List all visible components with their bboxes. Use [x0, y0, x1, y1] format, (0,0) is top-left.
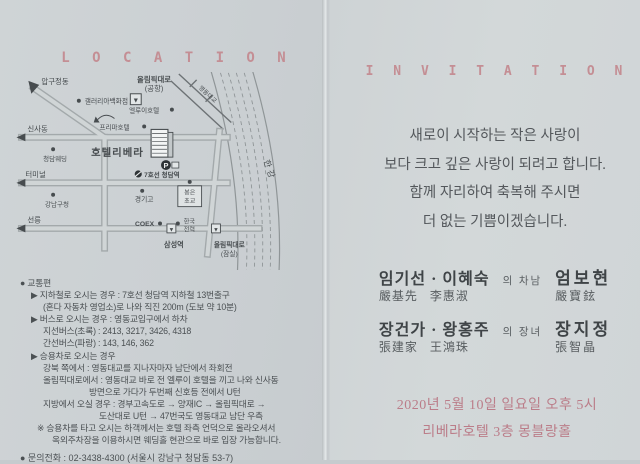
invitation-title: I N V I T A T I O N: [342, 64, 640, 79]
map-label-olympic-jamsil: 올림픽대로: [214, 240, 245, 249]
groom-relation-label: 의 차남: [503, 273, 543, 288]
map-label-apgujeong: 압구정동: [41, 76, 68, 86]
galleria-dot: [77, 99, 81, 103]
prima-dot: [142, 124, 146, 128]
map-label-kepco-1: 한국: [184, 218, 196, 225]
bride-parents-names: 장건가 · 왕홍주: [379, 316, 490, 340]
cheongdam-wedding-dot: [51, 147, 55, 151]
groom-name: 엄보현: [555, 264, 611, 289]
map-label-ellui: 엘루이호텔: [129, 106, 159, 115]
transport-line-subway: ▶ 지하철로 오시는 경우 : 7호선 청담역 지하철 13번출구: [31, 289, 322, 301]
map-label-terminal: 터미널: [25, 170, 46, 179]
map-label-cheongdam-wedding: 청담웨딩: [43, 154, 67, 163]
kepco-dot: [176, 221, 180, 225]
card-fold: [322, 0, 330, 460]
groom-name-hanja: 嚴寶鉉: [555, 289, 611, 303]
uturn-arrow: [98, 115, 115, 119]
hotel-building-icon: [151, 129, 173, 157]
map-label-coex: COEX: [135, 221, 155, 228]
message-line-4: 더 없는 기쁨이겠습니다.: [340, 208, 640, 237]
transport-line-car-5: 지방에서 오실 경우 : 경부고속도로 → 양재IC → 올림픽대로 →: [43, 398, 322, 410]
transport-section: ● 교통편 ▶ 지하철로 오시는 경우 : 7호선 청담역 지하철 13번출구 …: [0, 277, 322, 446]
subway-icon: [135, 170, 142, 177]
left-page: L O C A T I O N 한강: [0, 0, 322, 460]
map-label-kyunggi-high: 경기고: [135, 195, 154, 204]
coex-dot: [158, 221, 162, 225]
kyunggi-dot: [140, 189, 144, 193]
map-label-olympic-airport-2: (공항): [145, 84, 164, 93]
transport-line-car: ▶ 승용차로 오시는 경우: [31, 350, 322, 362]
transport-note: ※ 승용차를 타고 오시는 하객께서는 호텔 좌측 언덕으로 올라오셔서: [37, 422, 322, 434]
map-label-seolleung: 선릉: [27, 215, 41, 224]
bongeun-school-box: 봉은 초교: [178, 186, 202, 207]
message-line-2: 보다 크고 깊은 사랑이 되려고 합니다.: [340, 151, 640, 180]
svg-text:▼: ▼: [213, 227, 219, 233]
bride-parents-hanja: 張建家 王鴻珠: [379, 340, 490, 354]
uturn-arrowhead: [94, 117, 100, 123]
map-label-samseong: 삼성역: [164, 240, 184, 249]
location-title: L O C A T I O N: [16, 50, 338, 66]
map-svg: 한강 영동대교: [14, 72, 310, 270]
svg-text:▼: ▼: [168, 227, 174, 233]
bride-family-row: 장건가 · 왕홍주 의 장녀 장지정 張建家 王鴻珠 張智晶: [379, 315, 611, 354]
transport-line-bus: ▶ 버스로 오시는 경우 : 영동교입구에서 하차: [31, 313, 322, 325]
event-datetime: 2020년 5월 10일 일요일 오후 5시: [342, 392, 640, 419]
transport-line-bus-3: 간선버스(파랑) : 143, 146, 362: [43, 337, 322, 349]
message-line-1: 새로이 시작하는 작은 사랑이: [340, 122, 640, 151]
svg-text:초교: 초교: [184, 198, 196, 205]
transport-heading: ● 교통편: [20, 277, 322, 289]
parking-icon: P: [161, 160, 179, 170]
map: 한강 영동대교: [14, 72, 322, 275]
invitation-message: 새로이 시작하는 작은 사랑이 보다 크고 깊은 사랑이 되려고 합니다. 함께…: [340, 122, 640, 236]
transport-line-bus-2: 지선버스(초록) : 2413, 3217, 3426, 4318: [43, 325, 322, 337]
groom-family-row: 임기선 · 이혜숙 의 차남 엄보현 嚴基先 李惠淑 嚴寶鉉: [379, 264, 611, 303]
han-river: 한강: [210, 72, 280, 270]
svg-text:봉은: 봉은: [184, 189, 196, 197]
map-label-gangnam-office: 강남구청: [45, 200, 69, 209]
map-label-olympic-airport: 올림픽대로: [137, 74, 171, 84]
map-label-galleria: 갤러리아백화점: [85, 97, 128, 106]
transport-note-2: 옥외주차장을 이용하시면 웨딩홀 현관으로 바로 입장 가능합니다.: [52, 434, 322, 446]
families-section: 임기선 · 이혜숙 의 차남 엄보현 嚴基先 李惠淑 嚴寶鉉 장건가 · 왕홍주…: [340, 252, 640, 354]
map-label-hotel-riviera: 호텔리베라: [91, 146, 144, 159]
down-arrow-icon: ▼: [132, 98, 139, 105]
groom-parents-names: 임기선 · 이혜숙: [379, 265, 490, 289]
invitation-card: L O C A T I O N 한강: [0, 0, 640, 460]
right-page: I N V I T A T I O N 새로이 시작하는 작은 사랑이 보다 크…: [330, 0, 640, 460]
event-details: 2020년 5월 10일 일요일 오후 5시 리베라호텔 3층 몽블랑홀: [342, 392, 640, 446]
map-label-sinsadong: 신사동: [27, 124, 48, 133]
transport-line-subway-2: (혼다 자동차 영업소)로 나와 직진 200m (도보 약 10분): [43, 301, 322, 313]
map-label-prima: 프리마호텔: [99, 122, 129, 131]
groom-parents-hanja: 嚴基先 李惠淑: [379, 289, 490, 303]
transport-line-car-6: 도산대로 U턴 → 47번국도 영동대교 남단 우측: [99, 410, 322, 422]
map-label-line7-cheongdam: 7호선 청담역: [144, 170, 179, 179]
bride-name: 장지정: [555, 315, 611, 340]
event-venue: 리베라호텔 3층 몽블랑홀: [342, 419, 640, 446]
ellui-dot: [170, 108, 174, 112]
bongeun-dot: [188, 180, 192, 184]
yeongdong-bridge: 영동대교: [171, 74, 231, 129]
gangnam-office-dot: [51, 193, 55, 197]
svg-text:P: P: [163, 161, 168, 170]
transport-line-car-4: 방면으로 가다가 두번째 신호등 전에서 U턴: [89, 386, 322, 398]
transport-line-car-2: 강북 쪽에서 : 영동대교를 지나자마자 남단에서 좌회전: [43, 362, 322, 374]
phone-line: ● 문의전화 : 02-3438-4300 (서울시 강남구 청담동 53-7): [20, 451, 322, 464]
map-label-olympic-jamsil-2: (잠실): [221, 249, 238, 258]
map-label-kepco-2: 전력: [184, 225, 195, 233]
map-label-han-river: 한강: [262, 158, 278, 181]
bride-relation-label: 의 장녀: [503, 324, 543, 339]
transport-line-car-3: 올림픽대로에서 : 영동대교 바로 전 엘루이 호텔을 끼고 나와 신사동: [43, 374, 322, 386]
road-arrows: [16, 81, 39, 232]
bride-name-hanja: 張智晶: [555, 340, 611, 354]
message-line-3: 함께 자리하여 축복해 주시면: [340, 179, 640, 208]
